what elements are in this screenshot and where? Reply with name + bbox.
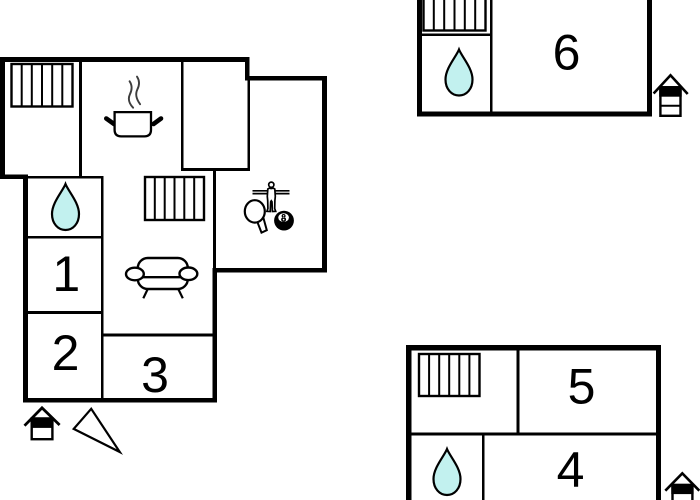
svg-text:6: 6 — [553, 25, 581, 81]
svg-text:3: 3 — [141, 347, 169, 403]
svg-text:4: 4 — [557, 442, 585, 498]
svg-text:1: 1 — [52, 246, 80, 302]
svg-text:2: 2 — [52, 325, 80, 381]
svg-text:5: 5 — [568, 359, 596, 415]
